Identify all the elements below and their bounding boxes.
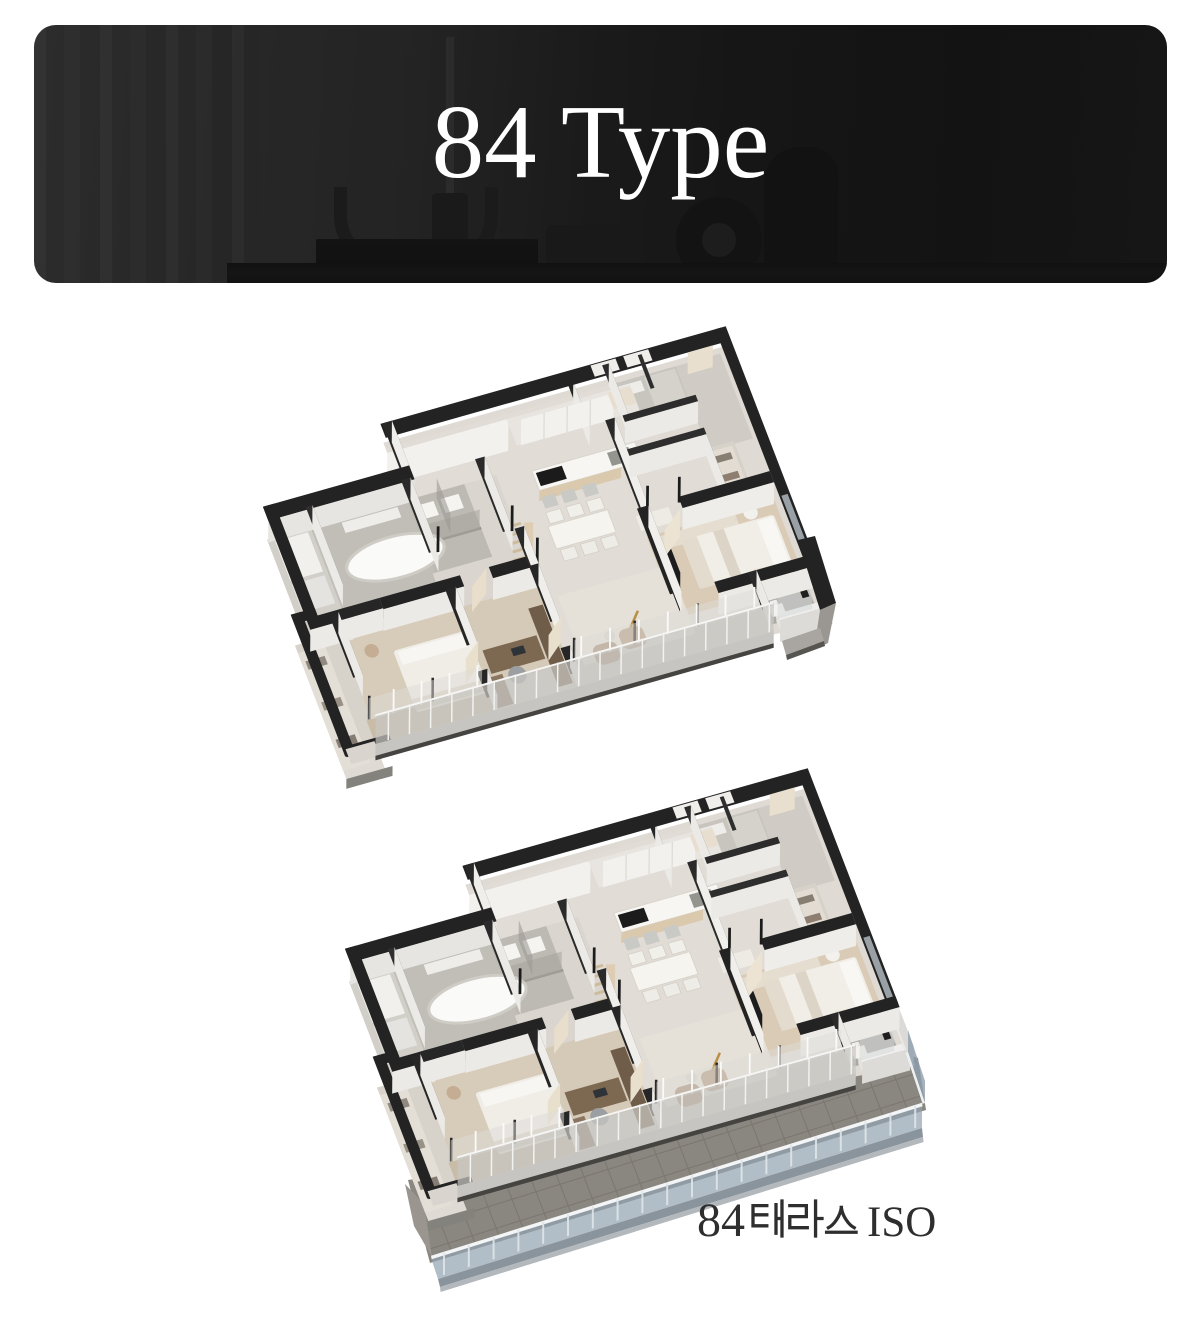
svg-text:ISO: ISO [867, 1199, 936, 1246]
svg-text:84: 84 [697, 1194, 745, 1247]
